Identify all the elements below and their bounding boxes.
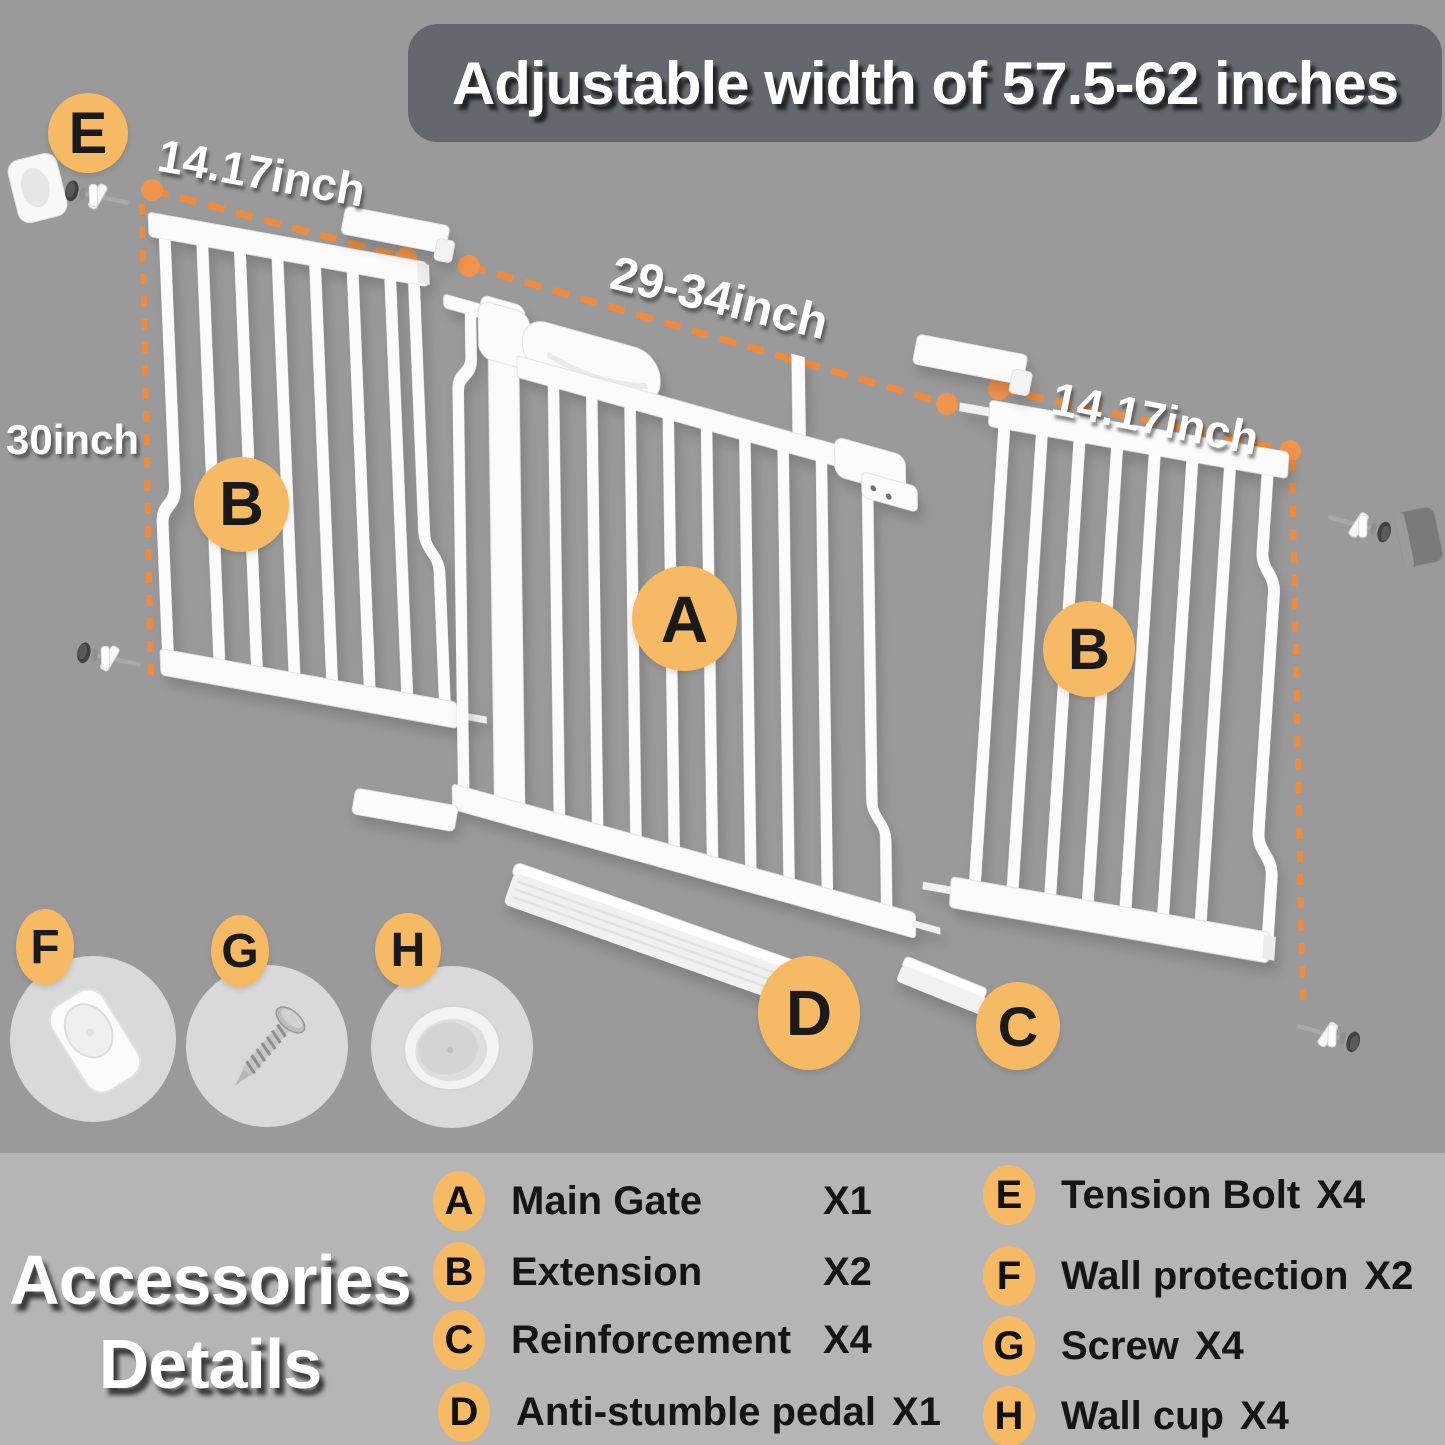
dimension-label-height: 30inch	[6, 416, 139, 464]
legend-item-screw: G Screw X4	[983, 1317, 1244, 1375]
dimension-line-height-right	[1292, 460, 1303, 1012]
legend-qty-screw: X4	[1195, 1324, 1244, 1369]
legend-qty-wall-cup: X4	[1240, 1394, 1289, 1439]
dimension-line-height-left	[142, 204, 151, 686]
legend-qty-wall-protection: X2	[1364, 1254, 1413, 1299]
legend-title: Accessories Details	[0, 1238, 420, 1406]
legend-label-screw: Screw	[1061, 1324, 1179, 1369]
legend-title-line2: Details	[0, 1322, 420, 1406]
legend-badge-h: H	[983, 1386, 1035, 1445]
tension-bolt-badge: E	[48, 93, 128, 173]
wall-cup-badge: H	[375, 913, 441, 987]
legend-qty-main-gate: X1	[823, 1179, 872, 1224]
legend-label-pedal: Anti-stumble pedal	[516, 1390, 876, 1435]
legend-item-wall-cup: H Wall cup X4	[983, 1387, 1289, 1445]
legend-qty-reinforcement: X4	[823, 1318, 872, 1363]
legend-badge-a: A	[433, 1171, 485, 1231]
screw-icon	[186, 965, 348, 1127]
reinforcement-badge: C	[976, 982, 1060, 1070]
tension-bolt-icon-top-left	[63, 176, 132, 216]
legend-qty-extension: X2	[823, 1250, 872, 1295]
tension-bolt-icon-mid-left	[75, 638, 144, 678]
pedal-badge: D	[758, 956, 860, 1070]
legend-label-tension-bolt: Tension Bolt	[1061, 1173, 1300, 1218]
wall-protection-badge: F	[16, 909, 74, 985]
legend-label-wall-protection: Wall protection	[1061, 1254, 1348, 1299]
legend-item-tension-bolt: E Tension Bolt X4	[983, 1166, 1365, 1224]
legend-item-reinforcement: C Reinforcement X4	[433, 1311, 872, 1369]
legend-item-main-gate: A Main Gate X1	[433, 1172, 872, 1230]
left-extension-illustration	[142, 211, 487, 734]
banner-text: Adjustable width of 57.5-62 inches	[452, 49, 1398, 118]
reinforcement-bar-top-right	[910, 334, 1035, 396]
screw-badge: G	[211, 915, 269, 987]
legend-title-line1: Accessories	[0, 1238, 420, 1322]
legend-item-extension: B Extension X2	[433, 1243, 872, 1301]
product-diagram-page: Adjustable width of 57.5-62 inches 14.17…	[0, 0, 1445, 1445]
legend-badge-e: E	[983, 1165, 1035, 1225]
legend-qty-tension-bolt: X4	[1316, 1173, 1365, 1218]
legend-badge-g: G	[983, 1316, 1035, 1376]
wall-plate-icon	[1394, 505, 1445, 568]
main-gate-badge: A	[632, 566, 737, 671]
tension-bolt-icon-bottom-right	[1294, 1013, 1364, 1057]
legend-label-extension: Extension	[511, 1250, 807, 1295]
legend-item-pedal: D Anti-stumble pedal X1	[438, 1383, 941, 1441]
tension-bolt-icon-top-right	[1325, 504, 1394, 547]
legend-item-wall-protection: F Wall protection X2	[983, 1247, 1413, 1305]
extension-right-badge: B	[1043, 601, 1135, 697]
wall-cup-photo	[371, 966, 533, 1128]
legend-badge-d: D	[438, 1382, 490, 1442]
legend-label-reinforcement: Reinforcement	[511, 1318, 807, 1363]
legend-badge-c: C	[433, 1310, 485, 1370]
banner: Adjustable width of 57.5-62 inches	[408, 24, 1442, 142]
legend-label-main-gate: Main Gate	[511, 1179, 807, 1224]
legend-badge-f: F	[983, 1246, 1035, 1306]
screw-photo	[186, 965, 348, 1127]
extension-left-badge: B	[194, 457, 289, 552]
reinforcement-bar-bottom-right	[896, 956, 991, 1015]
wall-cup-icon	[371, 966, 533, 1128]
legend-qty-pedal: X1	[892, 1390, 941, 1435]
legend-label-wall-cup: Wall cup	[1061, 1394, 1224, 1439]
reinforcement-bar-mid-left	[351, 788, 458, 832]
legend-badge-b: B	[433, 1242, 485, 1302]
